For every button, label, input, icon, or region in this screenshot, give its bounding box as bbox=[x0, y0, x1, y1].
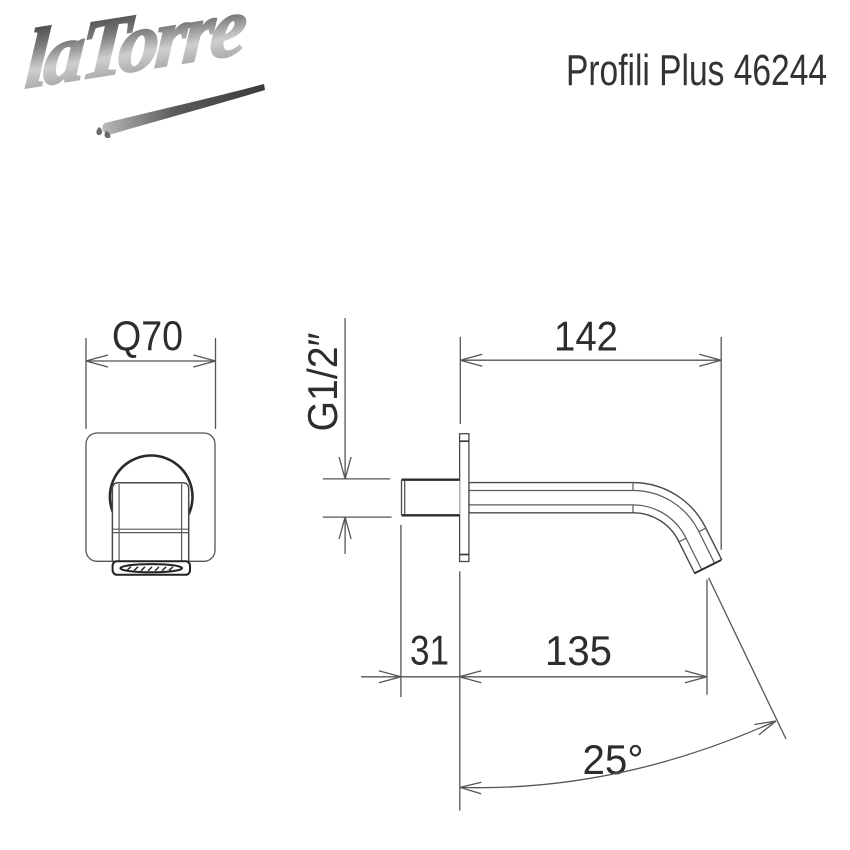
svg-text:Profili Plus 46244: Profili Plus 46244 bbox=[566, 46, 827, 95]
svg-text:laTorre: laTorre bbox=[23, 0, 249, 106]
svg-text:142: 142 bbox=[554, 313, 618, 360]
svg-text:Q70: Q70 bbox=[112, 312, 183, 359]
svg-text:25°: 25° bbox=[583, 736, 644, 783]
svg-text:31: 31 bbox=[410, 627, 449, 674]
svg-text:G1/2″: G1/2″ bbox=[299, 332, 346, 431]
svg-text:135: 135 bbox=[545, 627, 612, 674]
